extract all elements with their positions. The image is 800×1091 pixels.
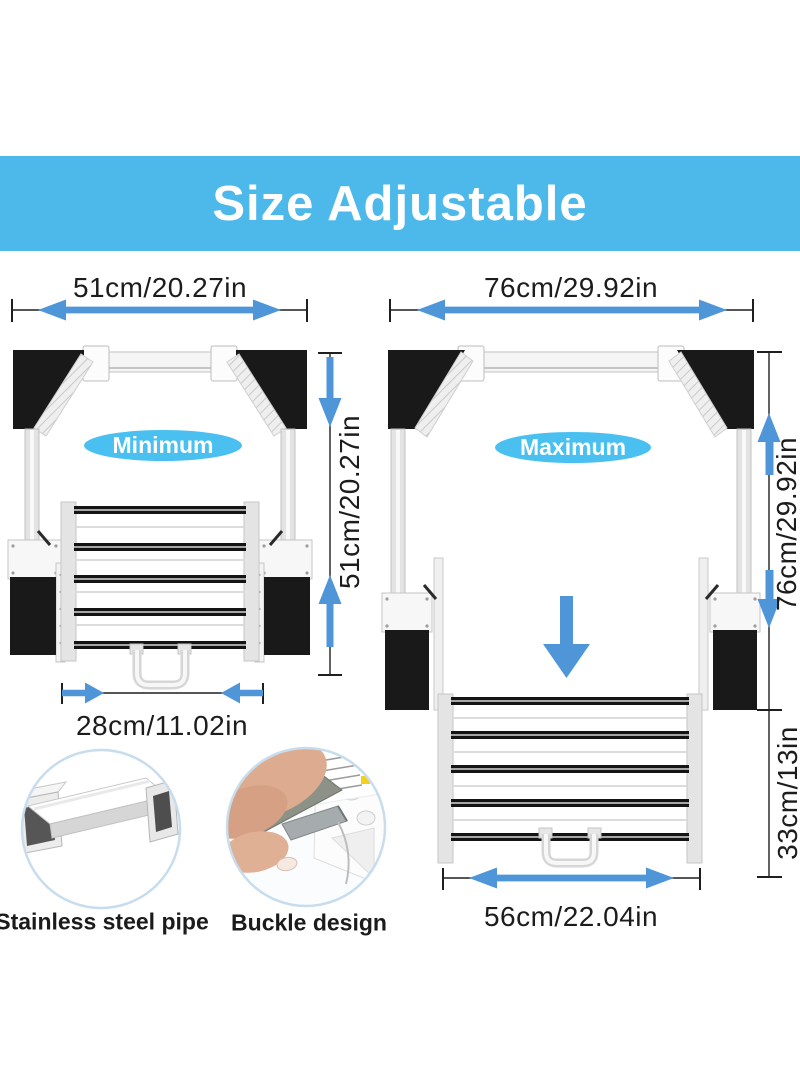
minimum-side-height-label: 51cm/20.27in: [334, 415, 366, 589]
expand-down-arrow-icon: [560, 596, 573, 644]
maximum-lower-height-label: 33cm/13in: [772, 726, 800, 860]
maximum-top-width-label: 76cm/29.92in: [484, 272, 658, 304]
maximum-structure: [382, 346, 760, 863]
horizontal-arrow-icon: [469, 868, 674, 889]
expand-down-arrow-icon: [543, 644, 590, 678]
minimum-diagram: [8, 299, 342, 704]
side-panel: [385, 630, 429, 710]
maximum-bottom-width-label: 56cm/22.04in: [484, 901, 658, 933]
side-panel: [264, 577, 310, 655]
stainless-steel-pipe-illustration: [16, 750, 180, 908]
stainless-steel-pipe-caption: Stainless steel pipe: [0, 909, 209, 936]
minimum-bottom-width-label: 28cm/11.02in: [76, 710, 248, 742]
minimum-top-width-label: 51cm/20.27in: [73, 272, 247, 304]
buckle-design-caption: Buckle design: [231, 910, 387, 937]
minimum-badge-label: Minimum: [113, 432, 214, 459]
buckle-design-illustration: [199, 725, 388, 906]
maximum-badge-label: Maximum: [520, 434, 626, 461]
side-panel: [713, 630, 757, 710]
warning-triangle-icon: [370, 750, 380, 762]
minimum-badge: Minimum: [84, 430, 242, 461]
inward-arrow-icon: [221, 683, 263, 704]
maximum-diagram: [382, 299, 782, 890]
maximum-badge: Maximum: [495, 432, 651, 463]
minimum-structure: [8, 346, 312, 685]
side-panel: [10, 577, 56, 655]
maximum-side-height-label: 76cm/29.92in: [771, 437, 800, 611]
product-infographic: Size Adjustable: [0, 0, 800, 1091]
handle: [137, 650, 185, 685]
inward-arrow-icon: [62, 683, 104, 704]
